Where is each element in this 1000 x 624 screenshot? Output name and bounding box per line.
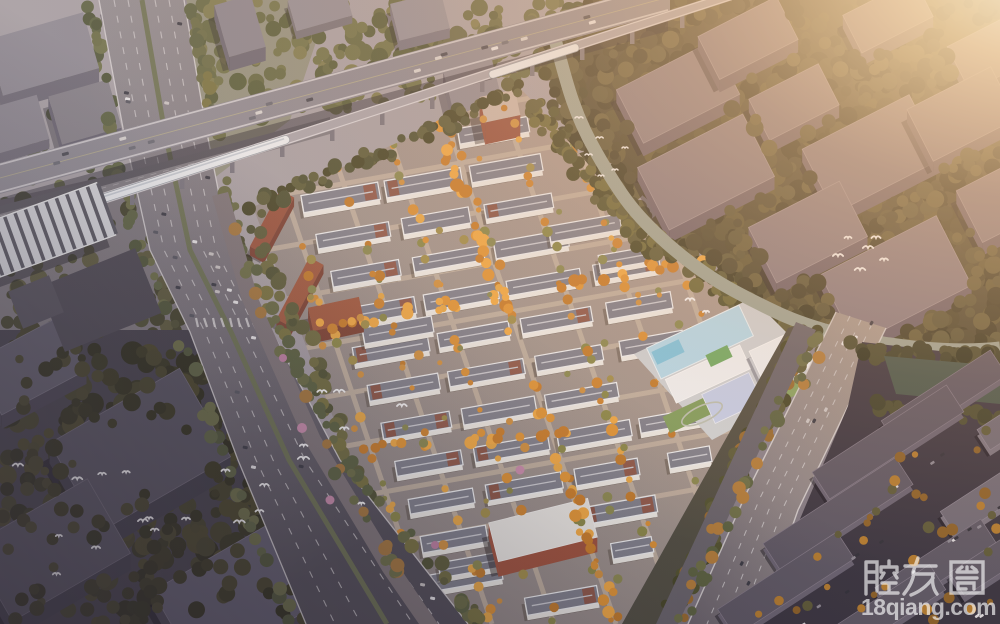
svg-text:18qiang.com: 18qiang.com (861, 594, 996, 620)
